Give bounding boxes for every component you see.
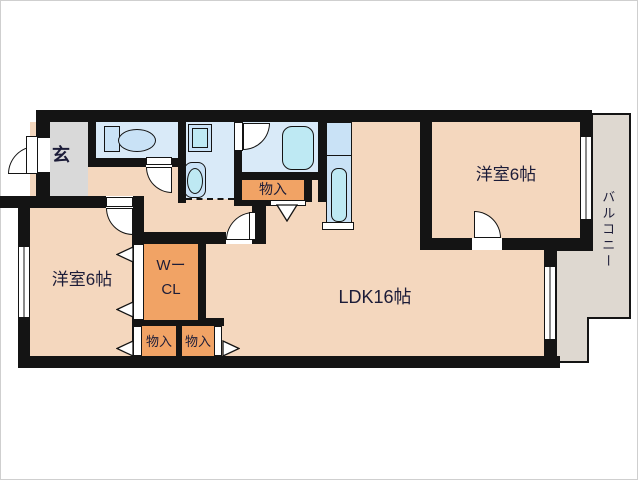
wall-bedroom-right-bottom <box>420 238 592 250</box>
ldk-label: LDK16帖 <box>320 288 430 308</box>
wall-storage-top-right <box>304 180 312 202</box>
wcl-label-line2: CL <box>146 282 196 299</box>
wall-toilet-washroom <box>178 122 186 203</box>
wall-bedroom-right-left <box>420 122 432 250</box>
storage-top-door-marker-icon <box>276 204 298 222</box>
window-bedroom-left <box>18 246 30 318</box>
wall-hall-band <box>0 196 107 208</box>
ldk-door-leaf <box>249 212 256 240</box>
wall-left-upper-a <box>36 122 50 138</box>
storage-right-door-strip <box>214 326 222 356</box>
washbasin-bowl-icon <box>187 168 203 194</box>
bathtub-icon <box>282 126 314 170</box>
entrance-door-leaf <box>26 136 38 174</box>
opening-bedroom-right <box>472 238 502 250</box>
bath-door-leaf <box>234 122 243 151</box>
entrance-label: 玄 <box>52 146 70 166</box>
wcl-label-line1: Wー <box>146 258 196 275</box>
opening-entrance <box>36 138 50 172</box>
bedroom-left-door-leaf <box>106 197 133 207</box>
bedroom-left-label: 洋室6帖 <box>42 271 122 290</box>
storage-top-label: 物入 <box>242 182 304 197</box>
washing-machine-inner-icon <box>192 128 208 148</box>
wall-top <box>36 110 592 122</box>
bedroom-right-label: 洋室6帖 <box>466 166 546 185</box>
wcl-door-marker-bottom-icon <box>116 301 134 318</box>
wall-hall-ldk-band <box>132 232 226 244</box>
storage-left-label: 物入 <box>142 335 176 349</box>
storage-right-label: 物入 <box>182 335 214 349</box>
kitchen-sink-icon <box>331 168 347 222</box>
window-bedroom-right <box>580 136 592 220</box>
floor-plan: 玄 洋室6帖 洋室6帖 Wー CL LDK16帖 物入 物入 物入 バルコニー <box>0 0 638 480</box>
wall-bottom <box>18 356 560 368</box>
kitchen-counter-divider <box>326 155 352 156</box>
storage-right-door-marker-icon <box>222 340 240 357</box>
toilet-door-leaf <box>146 157 172 165</box>
kitchen-counter-end <box>322 222 354 230</box>
storage-left-door-strip <box>133 326 142 356</box>
wcl-door-marker-top-icon <box>116 246 134 263</box>
storage-left-door-marker-icon <box>116 340 134 357</box>
wcl-door-strip <box>133 244 144 320</box>
wall-bath-bottom <box>234 172 320 180</box>
wall-bedroom-left-a <box>18 208 30 246</box>
window-ldk-balcony <box>544 266 556 340</box>
wall-kitchen-left <box>318 122 326 202</box>
washroom-open-entry <box>186 198 234 200</box>
wall-wcl-right <box>198 232 206 326</box>
balcony-label: バルコニー <box>600 190 614 300</box>
toilet-bowl-icon <box>118 129 156 152</box>
wall-storage-top-left <box>234 180 242 206</box>
